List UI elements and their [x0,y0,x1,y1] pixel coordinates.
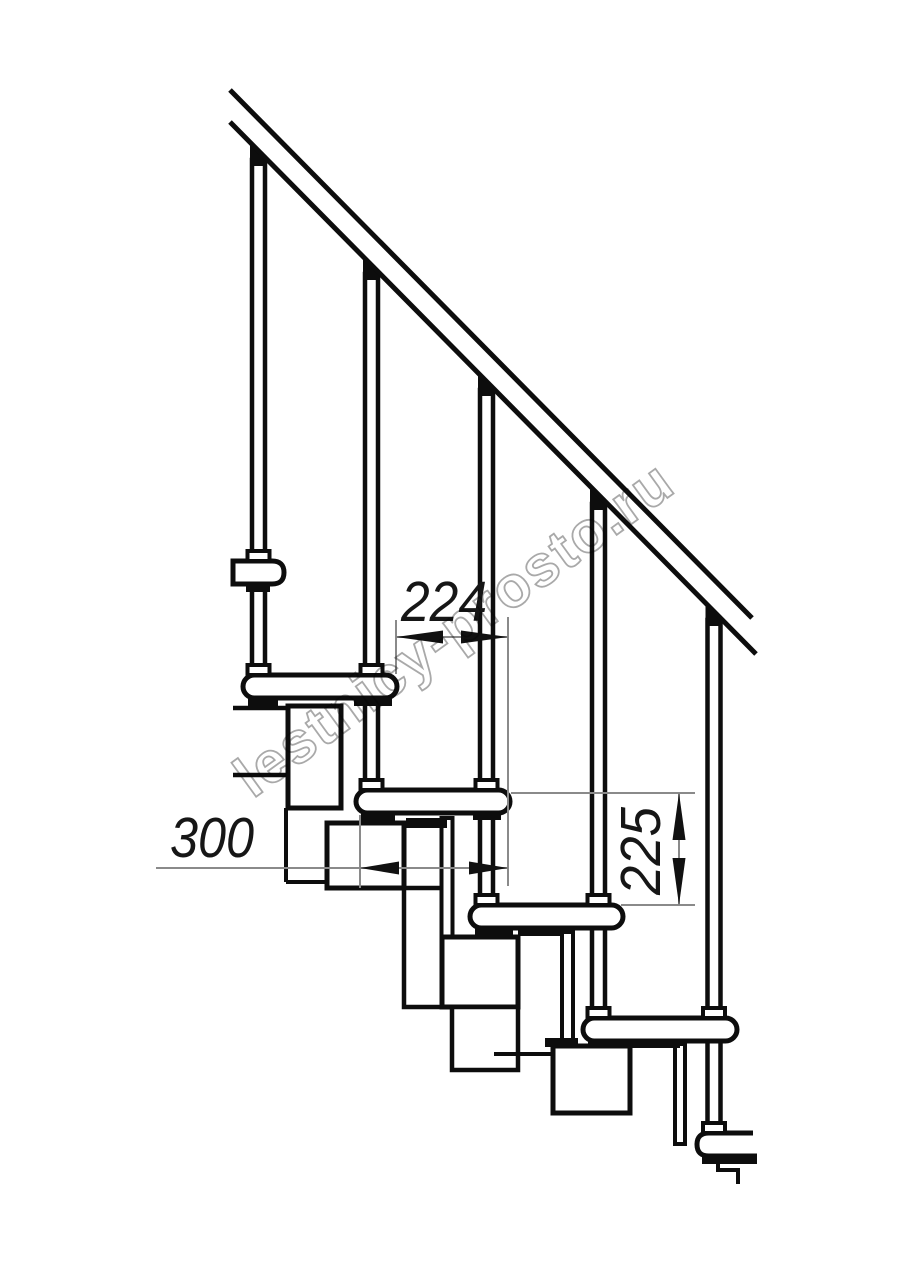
module-pipe-4 [675,1044,685,1144]
break-line-bottom-right [718,1164,738,1184]
baluster-1 [252,160,265,680]
staircase-drawing-page: 224 300 225 lestnicy-prosto.ru [0,0,914,1280]
tread-3 [470,905,623,928]
staircase-diagram: 224 300 225 lestnicy-prosto.ru [0,0,914,1280]
dim-label-225: 225 [609,807,673,896]
module-block-4 [553,1046,630,1113]
watermark-text: lestnicy-prosto.ru [222,448,686,810]
module-block-3 [442,937,518,1007]
dim-label-300: 300 [170,806,254,870]
baluster-3 [480,390,493,910]
tread-4 [583,1018,737,1041]
baluster-4 [592,504,605,1023]
tread-5-partial [697,1133,757,1156]
module-block-2 [327,823,404,888]
module-riser-3 [452,1007,518,1070]
tread-stub [233,561,284,584]
baluster-5 [708,620,721,1138]
module-pipe-2 [442,818,453,939]
tread-2 [356,790,510,813]
module-pipe-3 [562,932,573,1048]
